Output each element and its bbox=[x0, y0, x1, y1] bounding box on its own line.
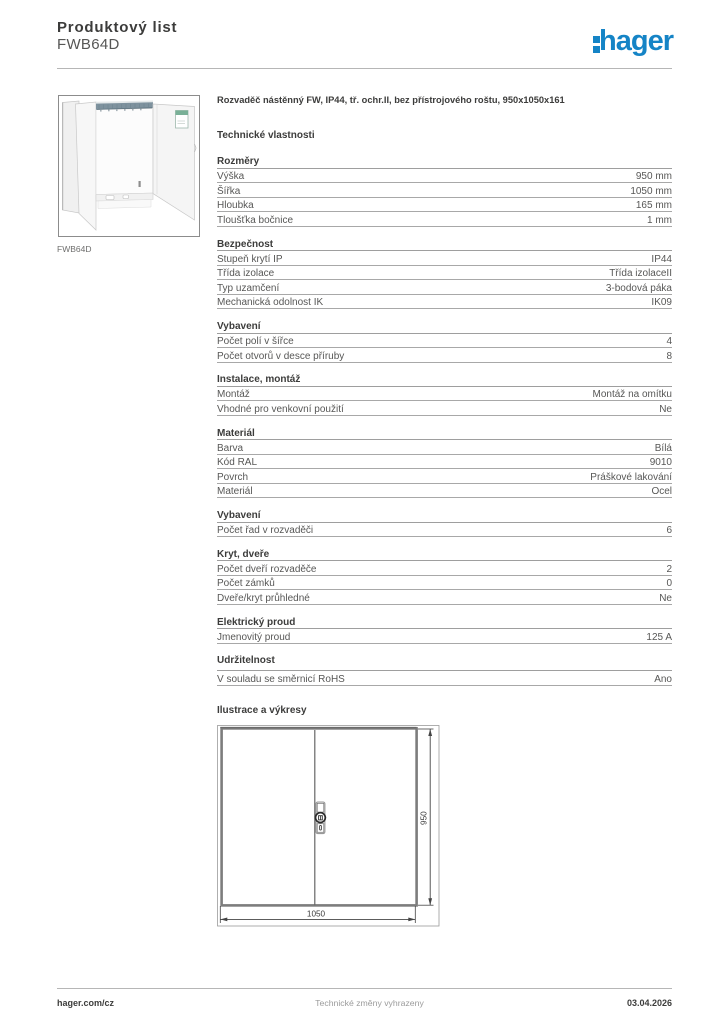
svg-text:950: 950 bbox=[419, 811, 428, 825]
svg-text:1050: 1050 bbox=[307, 910, 326, 919]
